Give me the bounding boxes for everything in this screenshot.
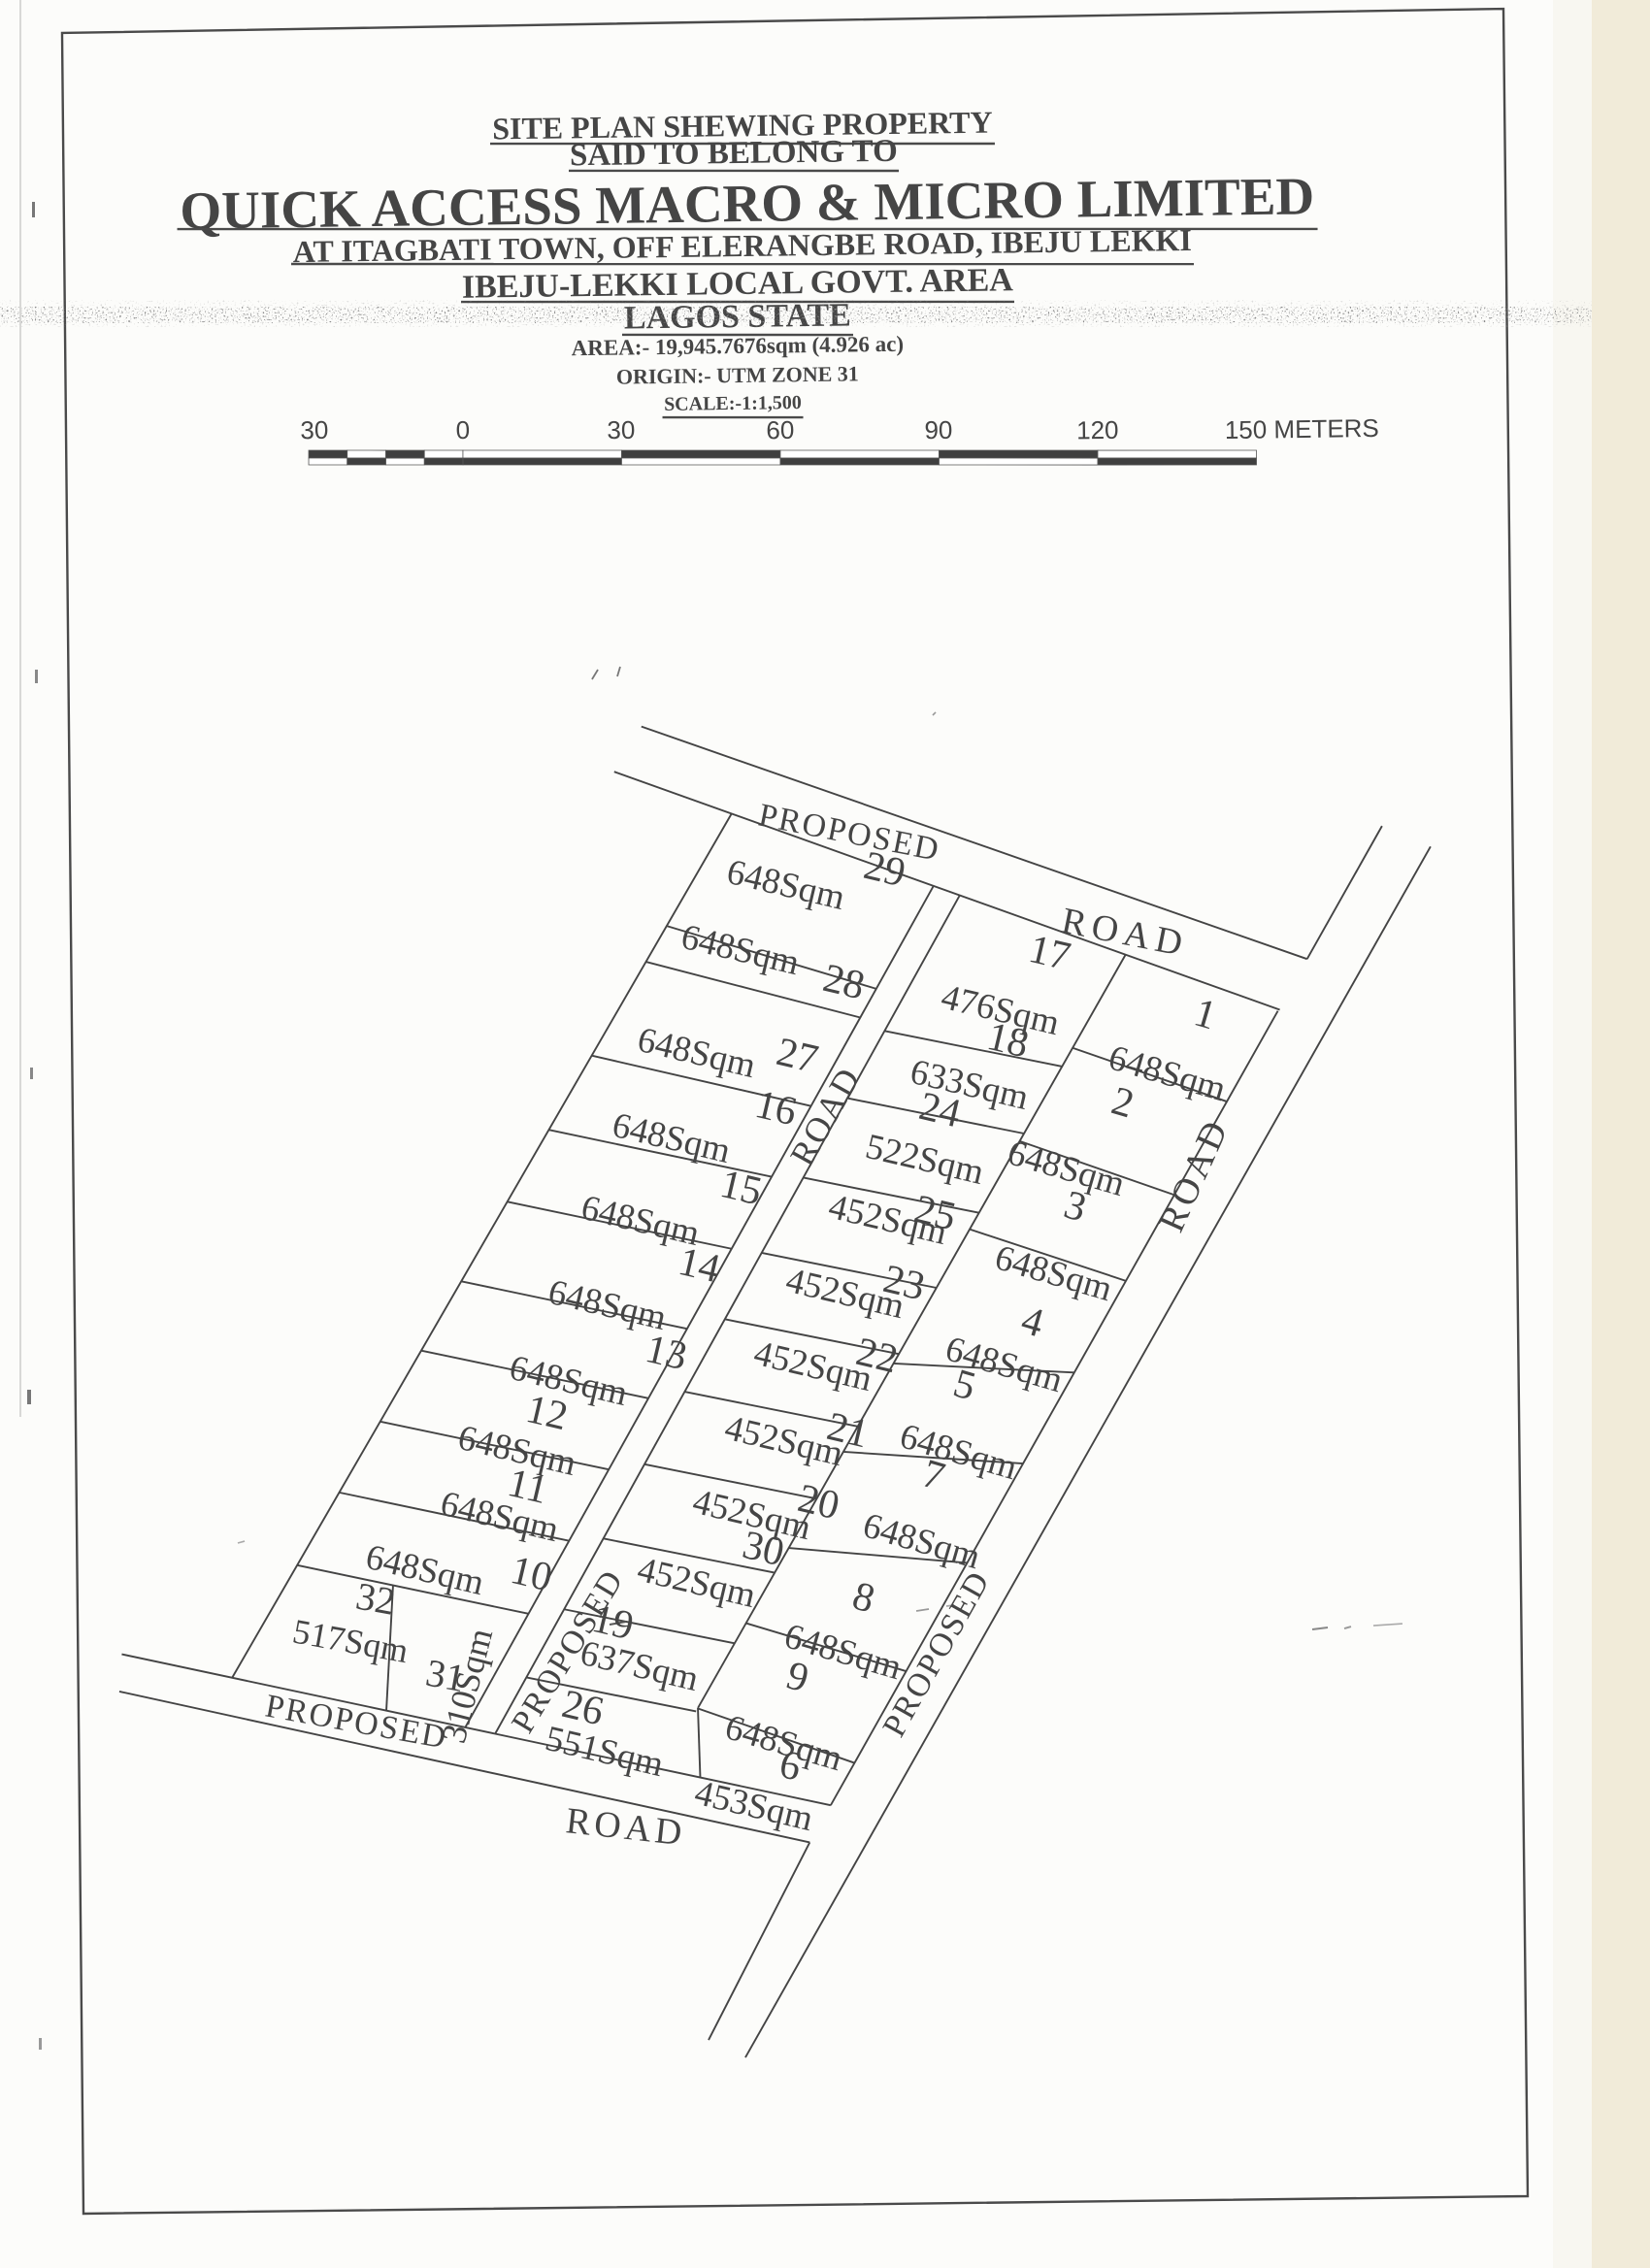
svg-text:522Sqm: 522Sqm — [862, 1127, 988, 1193]
svg-text:30: 30 — [739, 1523, 788, 1575]
svg-text:60: 60 — [766, 415, 794, 444]
svg-text:517Sqm: 517Sqm — [290, 1612, 412, 1671]
svg-text:16: 16 — [751, 1082, 801, 1134]
svg-text:AREA:- 19,945.7676sqm (4.926: AREA:- 19,945.7676sqm (4.926 ac) — [572, 332, 905, 360]
svg-text:15: 15 — [716, 1162, 766, 1214]
svg-text:452Sqm: 452Sqm — [750, 1333, 876, 1399]
svg-text:648Sqm: 648Sqm — [1003, 1133, 1129, 1204]
svg-text:SCALE:-1:1,500: SCALE:-1:1,500 — [664, 392, 802, 415]
svg-text:14: 14 — [675, 1239, 724, 1292]
svg-text:10: 10 — [507, 1548, 556, 1600]
svg-text:648Sqm: 648Sqm — [723, 852, 849, 918]
svg-text:ORIGIN:- UTM ZONE 31: ORIGIN:- UTM ZONE 31 — [616, 361, 859, 388]
svg-text:PROPOSED: PROPOSED — [755, 798, 942, 869]
svg-text:90: 90 — [924, 415, 952, 444]
svg-text:9: 9 — [781, 1653, 813, 1701]
svg-text:452Sqm: 452Sqm — [721, 1408, 847, 1474]
svg-text:28: 28 — [819, 956, 869, 1008]
svg-text:150 METERS: 150 METERS — [1225, 413, 1379, 444]
svg-text:ROAD: ROAD — [564, 1800, 688, 1854]
svg-text:648Sqm: 648Sqm — [991, 1237, 1117, 1309]
svg-text:120: 120 — [1076, 415, 1119, 445]
svg-text:24: 24 — [915, 1084, 965, 1136]
svg-text:ROAD: ROAD — [1151, 1112, 1237, 1238]
svg-text:SAID TO BELONG TO: SAID TO BELONG TO — [570, 134, 898, 173]
svg-text:32: 32 — [352, 1574, 398, 1624]
svg-text:4: 4 — [1016, 1298, 1048, 1346]
svg-text:12: 12 — [522, 1387, 572, 1439]
svg-text:27: 27 — [773, 1030, 822, 1082]
svg-text:1: 1 — [1189, 990, 1221, 1038]
svg-text:30: 30 — [607, 415, 635, 444]
svg-text:13: 13 — [642, 1327, 691, 1379]
svg-text:29: 29 — [860, 843, 909, 896]
svg-text:648Sqm: 648Sqm — [609, 1105, 735, 1171]
svg-text:551Sqm: 551Sqm — [542, 1719, 668, 1785]
svg-text:648Sqm: 648Sqm — [896, 1416, 1022, 1488]
svg-text:8: 8 — [847, 1573, 879, 1622]
svg-text:453Sqm: 453Sqm — [691, 1773, 817, 1839]
svg-text:17: 17 — [1025, 927, 1074, 979]
svg-text:PROPOSED: PROPOSED — [263, 1688, 450, 1756]
svg-text:0: 0 — [455, 415, 470, 444]
svg-text:648Sqm: 648Sqm — [677, 917, 804, 983]
svg-text:30: 30 — [300, 415, 328, 444]
svg-text:648Sqm: 648Sqm — [859, 1505, 985, 1577]
svg-text:3: 3 — [1059, 1182, 1091, 1231]
svg-text:648Sqm: 648Sqm — [634, 1020, 760, 1086]
svg-text:2: 2 — [1106, 1078, 1138, 1127]
